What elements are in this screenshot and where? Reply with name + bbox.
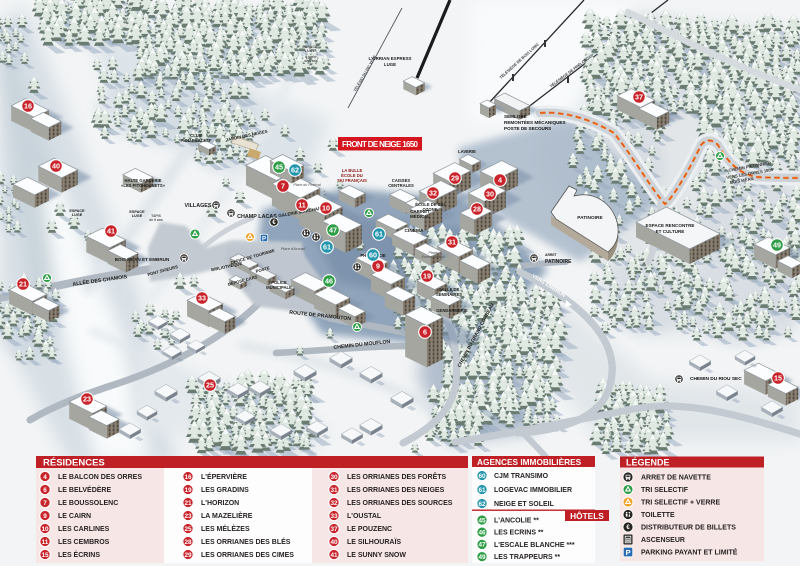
svg-text:ET CULTURE: ET CULTURE xyxy=(656,229,685,234)
svg-text:PATINOIRE: PATINOIRE xyxy=(577,215,603,221)
svg-text:POSTE DE SECOURS: POSTE DE SECOURS xyxy=(504,126,551,131)
svg-text:LES ORRIANES DES SOURCES: LES ORRIANES DES SOURCES xyxy=(347,500,453,507)
svg-text:LES ORRIANES DES FORÊTS: LES ORRIANES DES FORÊTS xyxy=(347,472,447,481)
svg-text:LE BOUSSOLENC: LE BOUSSOLENC xyxy=(58,500,118,507)
svg-text:de 6 ans: de 6 ans xyxy=(149,218,163,222)
svg-text:CHEMIN DU RIOU SEC: CHEMIN DU RIOU SEC xyxy=(690,376,742,382)
svg-text:LUGE: LUGE xyxy=(384,62,396,67)
svg-text:31: 31 xyxy=(448,238,456,247)
svg-text:Place du Festival: Place du Festival xyxy=(293,183,321,187)
svg-text:ARRET: ARRET xyxy=(545,253,558,257)
svg-text:32: 32 xyxy=(330,500,338,507)
svg-text:ESPACE RENCONTRE: ESPACE RENCONTRE xyxy=(646,223,695,228)
svg-text:37: 37 xyxy=(330,526,338,533)
svg-text:30: 30 xyxy=(486,190,494,199)
svg-text:61: 61 xyxy=(478,487,486,494)
svg-text:LES MÉLÈZES: LES MÉLÈZES xyxy=(201,524,250,533)
svg-text:NEIGE ET SOLEIL: NEIGE ET SOLEIL xyxy=(494,501,555,508)
svg-text:49: 49 xyxy=(773,241,781,250)
svg-text:CENTRALES: CENTRALES xyxy=(388,183,414,188)
svg-text:LES ECRINS **: LES ECRINS ** xyxy=(494,530,544,537)
svg-text:47: 47 xyxy=(478,542,486,549)
svg-text:61: 61 xyxy=(375,230,383,239)
svg-text:LES ÉCRINS: LES ÉCRINS xyxy=(58,550,100,559)
svg-text:9: 9 xyxy=(43,513,47,520)
svg-text:PIOU PIOU ESF: PIOU PIOU ESF xyxy=(181,138,212,143)
svg-text:19: 19 xyxy=(423,272,431,281)
svg-text:21: 21 xyxy=(19,280,27,289)
svg-text:de 7 ans: de 7 ans xyxy=(304,59,318,63)
svg-text:PATINOIRE: PATINOIRE xyxy=(545,259,572,265)
svg-text:TRI SELECTIF: TRI SELECTIF xyxy=(641,487,689,494)
svg-text:15: 15 xyxy=(41,552,49,559)
svg-text:L'HORIZON: L'HORIZON xyxy=(201,500,239,507)
svg-text:TRI SELECTIF + VERRE: TRI SELECTIF + VERRE xyxy=(641,500,720,507)
svg-text:62: 62 xyxy=(478,501,486,508)
svg-text:33: 33 xyxy=(330,513,338,520)
svg-text:45: 45 xyxy=(478,517,486,524)
svg-text:10: 10 xyxy=(322,204,330,213)
svg-text:19: 19 xyxy=(184,487,192,494)
svg-text:VILLAGES: VILLAGES xyxy=(185,203,212,209)
svg-text:REMONTÉES MÉCANIQUES: REMONTÉES MÉCANIQUES xyxy=(504,118,566,125)
svg-text:LE BELVÉDÈRE: LE BELVÉDÈRE xyxy=(58,485,111,494)
svg-text:LES ORRIANES DES NEIGES: LES ORRIANES DES NEIGES xyxy=(347,487,445,494)
svg-text:LE CAIRN: LE CAIRN xyxy=(58,513,91,520)
svg-text:29: 29 xyxy=(451,174,459,183)
svg-text:46: 46 xyxy=(325,277,333,286)
svg-text:25: 25 xyxy=(206,381,214,390)
svg-text:LUGE: LUGE xyxy=(132,214,143,218)
svg-text:CJM TRANSIMO: CJM TRANSIMO xyxy=(494,473,549,480)
svg-text:ARRET DE NAVETTE: ARRET DE NAVETTE xyxy=(641,475,711,482)
svg-text:GENDARMERIE: GENDARMERIE xyxy=(436,308,468,313)
svg-text:40: 40 xyxy=(330,539,338,546)
svg-text:MUNICIPALE: MUNICIPALE xyxy=(266,285,292,290)
svg-text:LE SUNNY SNOW: LE SUNNY SNOW xyxy=(347,552,406,559)
svg-text:PARKING PAYANT ET LIMITÉ: PARKING PAYANT ET LIMITÉ xyxy=(641,548,738,557)
svg-text:SÉMINAIRES: SÉMINAIRES xyxy=(436,292,462,297)
svg-text:RÉSIDENCES: RÉSIDENCES xyxy=(43,458,105,469)
svg-text:LES ORRIANES DES BLÉS: LES ORRIANES DES BLÉS xyxy=(201,537,291,546)
svg-text:LAVERIE: LAVERIE xyxy=(458,149,476,154)
svg-text:25: 25 xyxy=(184,526,192,533)
svg-text:16: 16 xyxy=(24,102,32,111)
svg-text:10: 10 xyxy=(41,526,49,533)
svg-text:11: 11 xyxy=(42,539,49,546)
svg-text:L'ANCOLIE **: L'ANCOLIE ** xyxy=(494,518,539,525)
svg-text:LES TRAPPEURS **: LES TRAPPEURS ** xyxy=(494,554,560,561)
svg-text:60: 60 xyxy=(369,251,377,260)
svg-text:31: 31 xyxy=(330,487,338,494)
svg-text:L'OUSTAL: L'OUSTAL xyxy=(347,513,382,520)
svg-text:37: 37 xyxy=(635,93,643,102)
svg-text:LUGE: LUGE xyxy=(305,49,316,53)
svg-text:7: 7 xyxy=(43,500,47,507)
svg-text:4: 4 xyxy=(498,176,502,185)
svg-text:P: P xyxy=(262,236,266,242)
svg-text:28: 28 xyxy=(184,539,192,546)
svg-text:33: 33 xyxy=(198,294,206,303)
svg-text:LE POUZENC: LE POUZENC xyxy=(347,526,392,533)
svg-text:16: 16 xyxy=(184,474,192,481)
svg-text:45: 45 xyxy=(275,163,283,172)
svg-text:LÉGENDE: LÉGENDE xyxy=(626,457,670,467)
svg-text:LUGE: LUGE xyxy=(72,213,83,217)
svg-text:LES GRADINS: LES GRADINS xyxy=(201,487,249,494)
svg-text:23: 23 xyxy=(184,513,192,520)
svg-text:6: 6 xyxy=(423,328,427,337)
svg-text:40: 40 xyxy=(52,162,60,171)
svg-text:MÉDICAL: MÉDICAL xyxy=(410,214,430,219)
svg-text:41: 41 xyxy=(107,227,115,236)
svg-text:ASCENSEUR: ASCENSEUR xyxy=(641,537,685,544)
svg-text:29: 29 xyxy=(184,552,192,559)
svg-text:LOGEVAC IMMOBILIER: LOGEVAC IMMOBILIER xyxy=(494,487,572,494)
svg-text:BOIS MEAN ET EMBRUN: BOIS MEAN ET EMBRUN xyxy=(115,257,170,262)
svg-text:L'ESCALE BLANCHE ***: L'ESCALE BLANCHE *** xyxy=(494,542,575,549)
svg-text:23: 23 xyxy=(83,395,91,404)
svg-text:62: 62 xyxy=(291,166,299,175)
svg-text:HÔTELS: HÔTELS xyxy=(570,510,604,521)
svg-text:LE BALCON DES ORRES: LE BALCON DES ORRES xyxy=(58,474,142,481)
svg-text:7: 7 xyxy=(281,182,285,191)
svg-text:SKI FRANÇAIS: SKI FRANÇAIS xyxy=(337,178,367,183)
svg-text:4: 4 xyxy=(43,474,47,481)
svg-text:LES CEMBROS: LES CEMBROS xyxy=(58,539,110,546)
svg-text:DISTRIBUTEUR DE BILLETS: DISTRIBUTEUR DE BILLETS xyxy=(641,525,736,532)
svg-text:L'ÉPERVIÈRE: L'ÉPERVIÈRE xyxy=(201,472,247,481)
svg-text:Place d'Accueil: Place d'Accueil xyxy=(281,247,305,251)
svg-text:AGENCES IMMOBILIÈRES: AGENCES IMMOBILIÈRES xyxy=(477,457,582,467)
svg-text:LES CARLINES: LES CARLINES xyxy=(58,526,110,533)
svg-text:46: 46 xyxy=(478,530,486,537)
svg-text:47: 47 xyxy=(329,226,337,235)
svg-text:P: P xyxy=(625,548,630,557)
svg-text:Ernest Hodoul: Ernest Hodoul xyxy=(422,255,445,259)
svg-text:41: 41 xyxy=(330,552,338,559)
svg-text:9: 9 xyxy=(376,262,380,271)
svg-text:TOILETTE: TOILETTE xyxy=(641,512,675,519)
svg-text:LE SILHOURAÏS: LE SILHOURAÏS xyxy=(347,538,401,546)
svg-text:60: 60 xyxy=(478,473,486,480)
svg-text:49: 49 xyxy=(478,554,486,561)
svg-text:FRONT DE NEIGE 1650: FRONT DE NEIGE 1650 xyxy=(342,140,419,149)
svg-text:11: 11 xyxy=(298,201,306,210)
svg-text:30: 30 xyxy=(330,474,338,481)
svg-text:15: 15 xyxy=(774,374,782,383)
svg-text:21: 21 xyxy=(184,500,192,507)
svg-text:32: 32 xyxy=(429,189,437,198)
svg-text:LES ORRIANES DES CIMES: LES ORRIANES DES CIMES xyxy=(201,552,294,559)
svg-text:LA MAZELIÈRE: LA MAZELIÈRE xyxy=(201,511,253,520)
svg-text:61: 61 xyxy=(323,243,331,252)
svg-text:«LES PITCHOUNETS»: «LES PITCHOUNETS» xyxy=(121,183,166,188)
svg-text:28: 28 xyxy=(473,205,481,214)
svg-text:6: 6 xyxy=(43,487,47,494)
svg-text:SEMLORE: SEMLORE xyxy=(504,114,527,119)
